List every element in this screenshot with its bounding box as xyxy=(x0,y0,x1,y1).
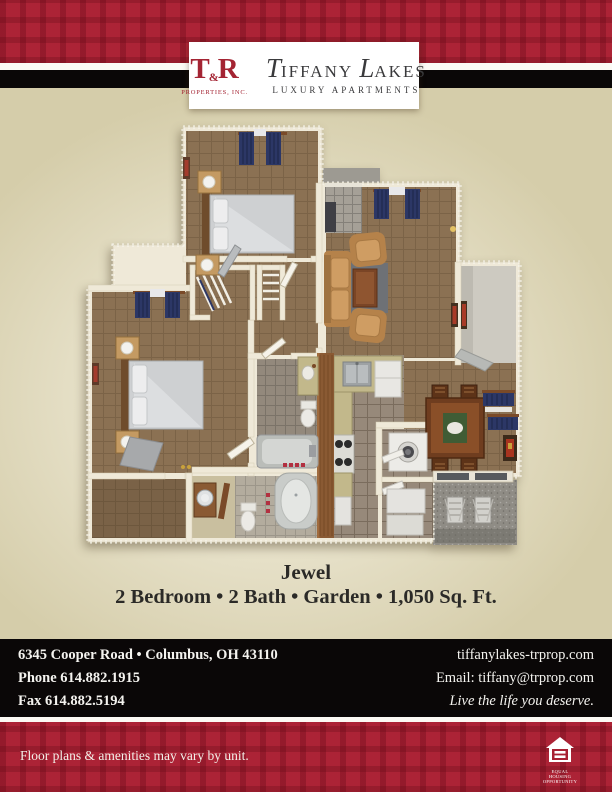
plan-name: Jewel xyxy=(0,560,612,585)
brand-subtitle: LUXURY APARTMENTS xyxy=(272,85,420,95)
refrigerator xyxy=(375,361,401,397)
tr-subtitle: PROPERTIES, INC. xyxy=(181,89,248,96)
address-line: 6345 Cooper Road • Columbus, OH 43110 xyxy=(18,644,278,667)
contact-left: 6345 Cooper Road • Columbus, OH 43110 Ph… xyxy=(18,644,278,713)
armchair xyxy=(348,231,387,268)
entry-stoop xyxy=(323,168,380,184)
stove xyxy=(332,435,354,473)
equal-housing-house-icon xyxy=(545,736,575,763)
email-line: Email: tiffany@trprop.com xyxy=(436,667,594,690)
website-line: tiffanylakes-trprop.com xyxy=(436,644,594,667)
tagline: Live the life you deserve. xyxy=(436,690,594,713)
dining-room xyxy=(426,385,519,471)
tiffany-lakes-wordmark: TIFFANY LAKES LUXURY APARTMENTS xyxy=(266,56,427,95)
floorplan-rendering xyxy=(55,105,525,550)
logo-box: T&R PROPERTIES, INC. TIFFANY LAKES LUXUR… xyxy=(189,42,419,109)
contact-right: tiffanylakes-trprop.com Email: tiffany@t… xyxy=(436,644,594,713)
patio-chair xyxy=(473,497,493,523)
sofa xyxy=(324,251,351,327)
brand-name: TIFFANY LAKES xyxy=(266,56,427,84)
disclaimer-text: Floor plans & amenities may vary by unit… xyxy=(20,748,249,764)
contact-footer: 6345 Cooper Road • Columbus, OH 43110 Ph… xyxy=(0,639,612,717)
tr-properties-logo: T&R PROPERTIES, INC. xyxy=(181,56,248,96)
fax-line: Fax 614.882.5194 xyxy=(18,690,278,713)
sliding-glass-door xyxy=(433,471,513,482)
dishwasher xyxy=(335,497,351,525)
phone-line: Phone 614.882.1915 xyxy=(18,667,278,690)
equal-housing-label: EQUAL HOUSING OPPORTUNITY xyxy=(540,769,580,784)
tr-monogram: T&R xyxy=(190,56,238,87)
equal-housing-logo: EQUAL HOUSING OPPORTUNITY xyxy=(540,736,580,784)
patio-chair xyxy=(445,497,465,523)
plan-details: 2 Bedroom • 2 Bath • Garden • 1,050 Sq. … xyxy=(0,586,612,609)
patio xyxy=(433,480,517,545)
armchair xyxy=(348,307,387,344)
